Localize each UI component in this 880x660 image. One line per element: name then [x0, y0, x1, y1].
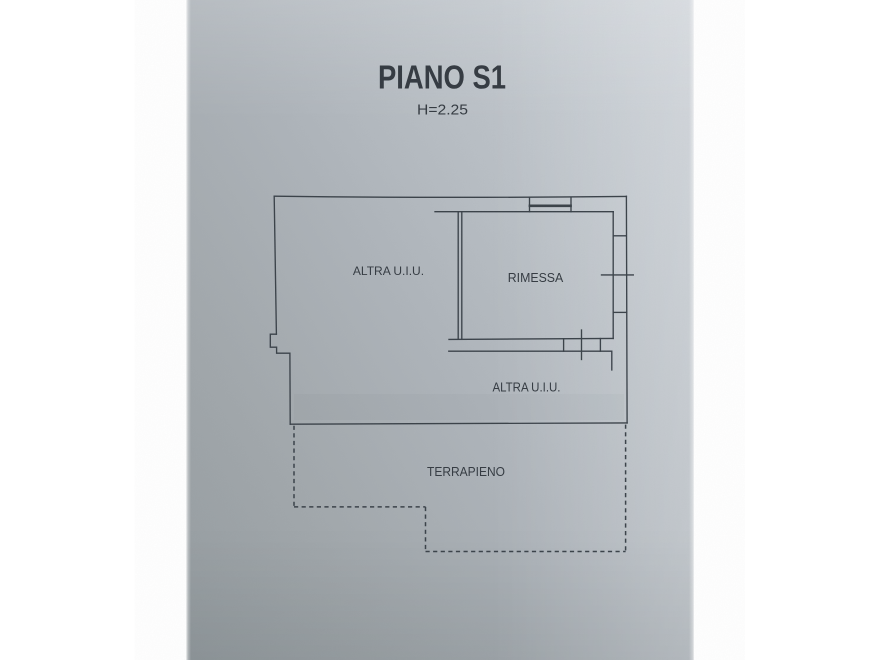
svg-text:TERRAPIENO: TERRAPIENO: [427, 464, 505, 479]
svg-text:PIANO S1: PIANO S1: [378, 59, 506, 96]
svg-text:RIMESSA: RIMESSA: [508, 270, 564, 285]
svg-text:ALTRA U.I.U.: ALTRA U.I.U.: [353, 264, 424, 278]
svg-text:H=2.25: H=2.25: [417, 102, 468, 119]
svg-text:ALTRA U.I.U.: ALTRA U.I.U.: [493, 380, 561, 394]
